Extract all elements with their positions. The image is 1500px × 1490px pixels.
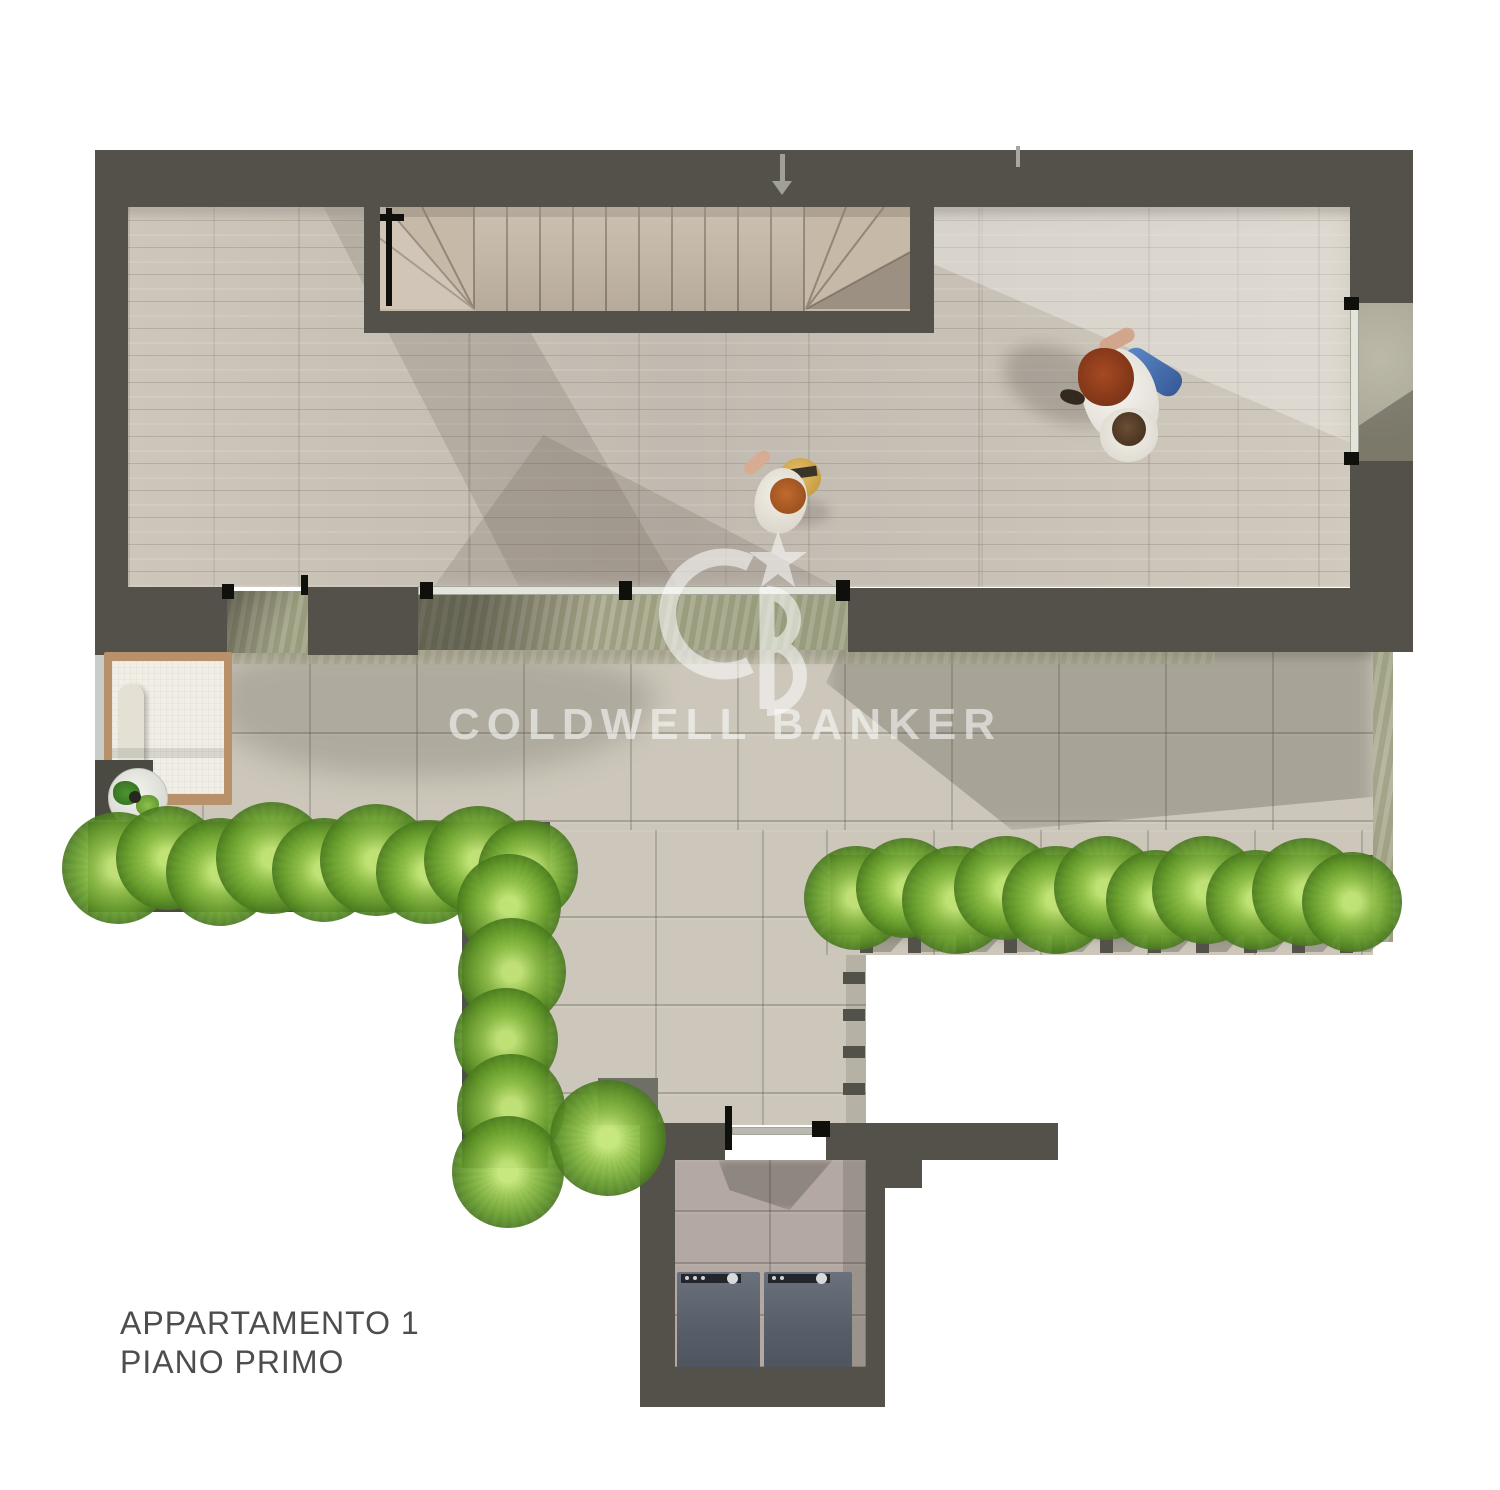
dryer-knob <box>816 1273 827 1284</box>
person-man-hair <box>1112 412 1146 446</box>
door-opening-stone-left <box>227 591 308 653</box>
dryer-button <box>772 1276 776 1280</box>
plant-pot <box>129 791 141 803</box>
laundry-door-shadow <box>718 1160 833 1210</box>
door-pivot <box>222 584 234 599</box>
washer-button <box>701 1276 705 1280</box>
laundry-wall-right <box>866 1188 885 1367</box>
wall-right-upper <box>1350 150 1413 303</box>
right-balcony-floor <box>1358 303 1413 461</box>
plan-label-line1: APPARTAMENTO 1 <box>120 1304 420 1343</box>
star-icon <box>749 531 807 587</box>
railing-post-side <box>843 972 865 984</box>
stair-wall-right <box>910 205 934 333</box>
stair-wall-bottom <box>364 311 934 333</box>
stair-door-leaf <box>386 208 392 306</box>
door-pivot <box>1344 297 1359 310</box>
laundry-wall-bottom <box>640 1367 885 1407</box>
door-pivot <box>812 1121 830 1137</box>
balcony-glass-door <box>1350 303 1359 461</box>
entry-arrow-icon <box>769 154 795 198</box>
washing-machine-right <box>764 1272 852 1368</box>
wall-top <box>95 150 1413 207</box>
laundry-glass-door <box>732 1127 814 1135</box>
wall-band-a <box>128 587 227 655</box>
plan-label-line2: PIANO PRIMO <box>120 1343 344 1382</box>
door-pivot <box>420 582 433 599</box>
wall-band-b <box>308 587 418 655</box>
washer-button <box>693 1276 697 1280</box>
door-pivot <box>1344 452 1359 465</box>
laundry-door-leaf <box>725 1106 732 1150</box>
floor-plan: COLDWELL BANKER APPARTAMENTO 1 PIANO PRI… <box>0 0 1500 1490</box>
door-pivot <box>836 580 850 601</box>
person-center-hair <box>770 478 806 514</box>
washer-button <box>685 1276 689 1280</box>
watermark-brand: COLDWELL BANKER <box>300 700 1150 750</box>
balcony-shadow <box>1358 303 1413 461</box>
wall-left <box>95 150 128 658</box>
coldwell-banker-logo <box>615 525 830 720</box>
laundry-wall-step <box>866 1160 922 1188</box>
person-woman-hair <box>1078 348 1134 406</box>
laundry-wall-top-right-extension <box>826 1123 1058 1160</box>
dryer-button <box>780 1276 784 1280</box>
door-opening-shadow <box>227 591 308 653</box>
washing-machine-left <box>677 1272 760 1368</box>
wall-band-c <box>848 588 1413 652</box>
railing-post-side <box>843 1046 865 1058</box>
railing-post-side <box>843 1083 865 1095</box>
section-tick <box>1016 146 1020 167</box>
washer-knob <box>727 1273 738 1284</box>
door-leaf-mark <box>301 575 308 595</box>
staircase <box>378 207 912 311</box>
railing-post-side <box>843 1009 865 1021</box>
